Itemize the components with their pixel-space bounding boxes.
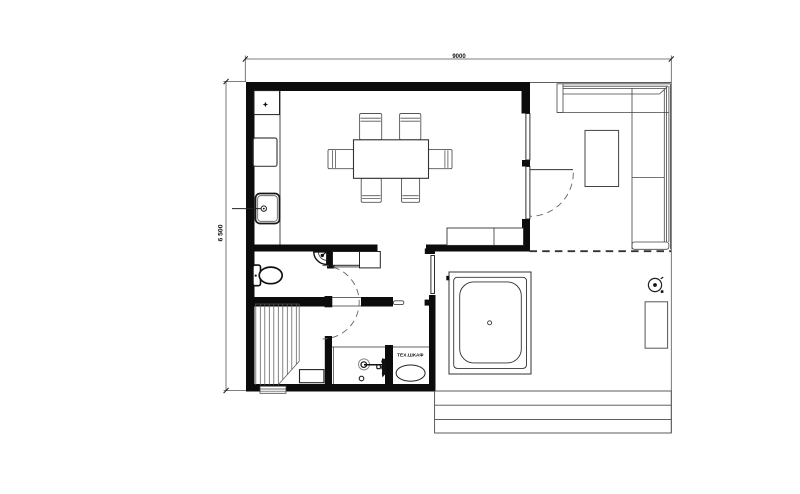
svg-text:6 500: 6 500	[218, 224, 225, 241]
svg-text:ТЕХ.ШКАФ: ТЕХ.ШКАФ	[397, 352, 424, 358]
svg-text:9000: 9000	[452, 54, 466, 60]
